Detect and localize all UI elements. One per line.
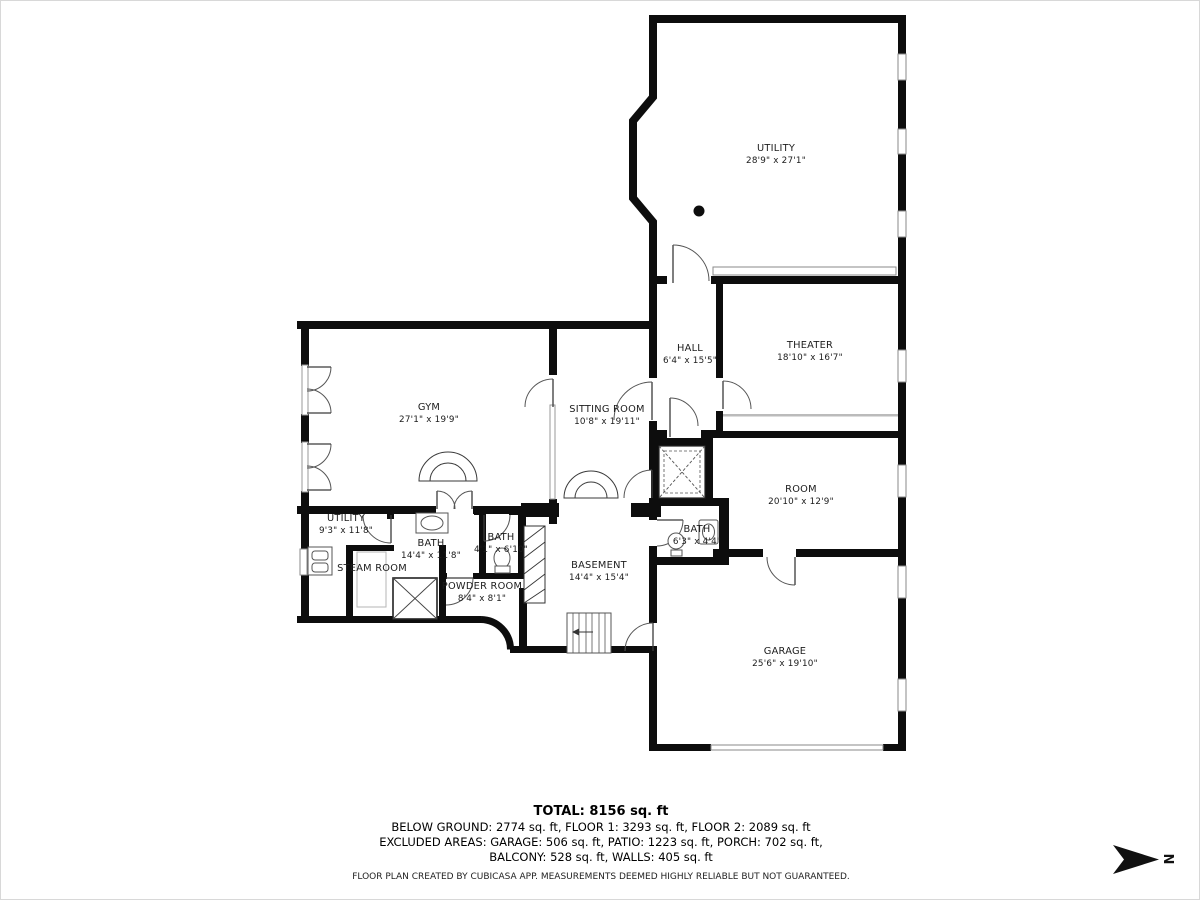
room-label: POWDER ROOM <box>442 581 522 592</box>
total-area-text: TOTAL: 8156 sq. ft <box>534 804 669 819</box>
room-label: UTILITY <box>327 513 365 524</box>
room-label: STEAM ROOM <box>337 563 407 574</box>
room-dimensions: 20'10" x 12'9" <box>768 497 834 507</box>
steam-cabin <box>393 578 437 619</box>
curved-steps-sitting <box>564 471 618 498</box>
garage-door <box>711 745 883 750</box>
vanity-sink <box>308 547 332 575</box>
theater-screen-line <box>723 414 898 417</box>
room-dimensions: 9'3" x 11'8" <box>319 526 373 536</box>
room-dimensions: 6'4" x 15'5" <box>663 356 717 366</box>
floors-area-text: BELOW GROUND: 2774 sq. ft, FLOOR 1: 3293… <box>391 820 811 834</box>
elevator-shaft <box>659 446 705 498</box>
room-dimensions: 6'3" x 4'4" <box>673 537 721 547</box>
footer-block: TOTAL: 8156 sq. ft BELOW GROUND: 2774 sq… <box>352 804 850 882</box>
room-label: GYM <box>418 402 440 413</box>
room-label: BASEMENT <box>571 560 628 571</box>
room-label: HALL <box>677 343 703 354</box>
chimney-hatch <box>524 526 545 603</box>
north-arrow-icon <box>1113 845 1159 874</box>
balcony-walls-text: BALCONY: 528 sq. ft, WALLS: 405 sq. ft <box>489 850 713 864</box>
room-dimensions: 18'10" x 16'7" <box>777 353 843 363</box>
bath-sink <box>416 513 448 533</box>
room-dimensions: 14'4" x 15'4" <box>569 573 629 583</box>
room-dimensions: 14'4" x 11'8" <box>401 551 461 561</box>
excluded-areas-text: EXCLUDED AREAS: GARAGE: 506 sq. ft, PATI… <box>379 835 823 849</box>
curved-steps-gym <box>419 452 477 481</box>
room-label: ROOM <box>785 484 817 495</box>
room-label: BATH <box>683 524 710 535</box>
north-arrow: N <box>1113 845 1175 874</box>
room-label: BATH <box>487 532 514 543</box>
room-dimensions: 25'6" x 19'10" <box>752 659 818 669</box>
room-label: BATH <box>417 538 444 549</box>
utility-counter <box>713 267 896 275</box>
room-dimensions: 27'1" x 19'9" <box>399 415 459 425</box>
room-label: GARAGE <box>764 646 807 657</box>
room-dimensions: 10'8" x 19'11" <box>574 417 640 427</box>
floor-plan-page: UTILITY28'9" x 27'1"HALL6'4" x 15'5"THEA… <box>0 0 1200 900</box>
glass-partition <box>550 405 555 499</box>
room-label: THEATER <box>786 340 833 351</box>
staircase <box>567 613 611 653</box>
shower-enclosure <box>357 552 386 607</box>
floor-plan-canvas: UTILITY28'9" x 27'1"HALL6'4" x 15'5"THEA… <box>1 1 1200 900</box>
room-dimensions: 4'1" x 6'10" <box>474 545 528 555</box>
room-dimensions: 28'9" x 27'1" <box>746 156 806 166</box>
north-label: N <box>1160 854 1175 865</box>
room-dimensions: 8'4" x 8'1" <box>458 594 506 604</box>
room-label: SITTING ROOM <box>569 404 645 415</box>
room-label: UTILITY <box>757 143 795 154</box>
disclaimer-text: FLOOR PLAN CREATED BY CUBICASA APP. MEAS… <box>352 872 850 882</box>
support-column <box>694 206 705 217</box>
